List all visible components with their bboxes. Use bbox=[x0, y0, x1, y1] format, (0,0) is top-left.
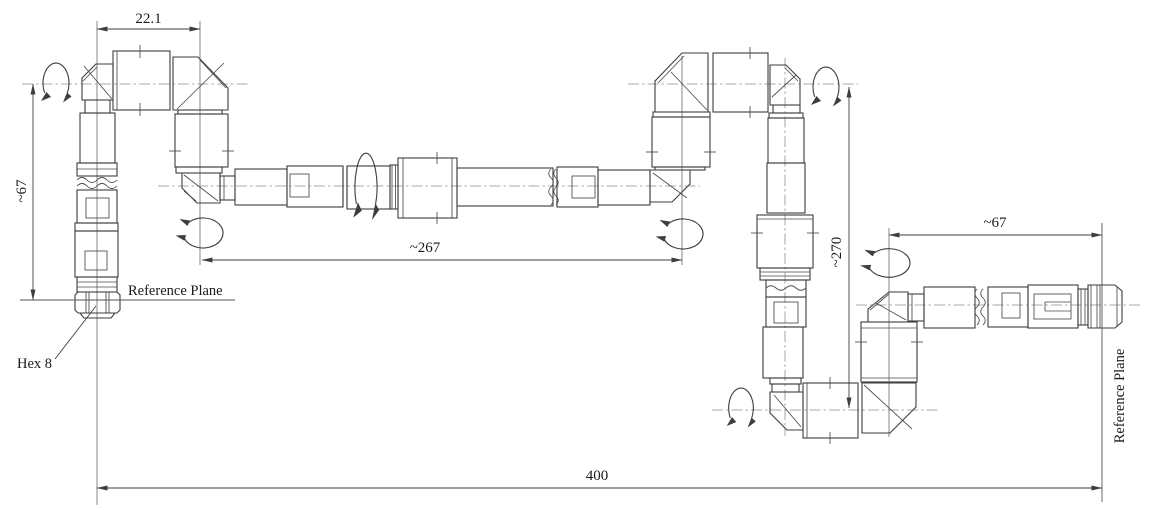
rotation-arrow-icon bbox=[727, 388, 756, 427]
dimension-value: ~267 bbox=[410, 240, 441, 256]
dimension-overall-400: 400 bbox=[97, 468, 1102, 488]
engineering-drawing-sheet: Reference Plane Reference Plane Hex 8 22… bbox=[0, 0, 1149, 510]
rotation-arrow-icon bbox=[176, 218, 223, 248]
dimension-value: 22.1 bbox=[135, 11, 161, 27]
rotation-arrow-icon bbox=[811, 67, 842, 106]
reference-plane-left: Reference Plane bbox=[20, 283, 235, 300]
dimension-value: 400 bbox=[586, 468, 609, 484]
dimension-value: ~270 bbox=[829, 237, 845, 268]
right-riser-assembly bbox=[646, 47, 800, 170]
reference-plane-right: Reference Plane bbox=[1102, 223, 1128, 502]
dimension-width-22-1: 22.1 bbox=[97, 11, 200, 29]
dimension-length-67-right: ~67 bbox=[889, 215, 1102, 235]
right-connector bbox=[751, 105, 819, 430]
hex-label: Hex 8 bbox=[17, 356, 52, 372]
bottom-right-elbow-assembly bbox=[803, 292, 923, 444]
rotation-arrow-icon bbox=[860, 249, 910, 278]
rotation-arrow-icon bbox=[41, 63, 72, 102]
reference-plane-left-label: Reference Plane bbox=[128, 283, 223, 299]
dimension-height-270: ~270 bbox=[829, 87, 849, 408]
centerlines bbox=[22, 21, 1140, 505]
main-cable-run bbox=[235, 152, 690, 224]
dimension-value: ~67 bbox=[14, 179, 30, 203]
top-left-elbow-assembly bbox=[113, 45, 235, 203]
cable-assembly-drawing: Reference Plane Reference Plane Hex 8 22… bbox=[0, 0, 1149, 510]
rotation-arrow-icon bbox=[353, 153, 379, 220]
reference-plane-right-label: Reference Plane bbox=[1112, 349, 1128, 444]
dimension-value: ~67 bbox=[983, 215, 1007, 231]
dimension-height-67-left: ~67 bbox=[14, 84, 33, 300]
rotation-arrow-icon bbox=[656, 219, 703, 249]
right-exit-connector bbox=[908, 285, 1122, 328]
hex-nut bbox=[75, 292, 120, 313]
hex-callout: Hex 8 bbox=[17, 306, 96, 372]
dimension-length-267: ~267 bbox=[202, 240, 682, 260]
